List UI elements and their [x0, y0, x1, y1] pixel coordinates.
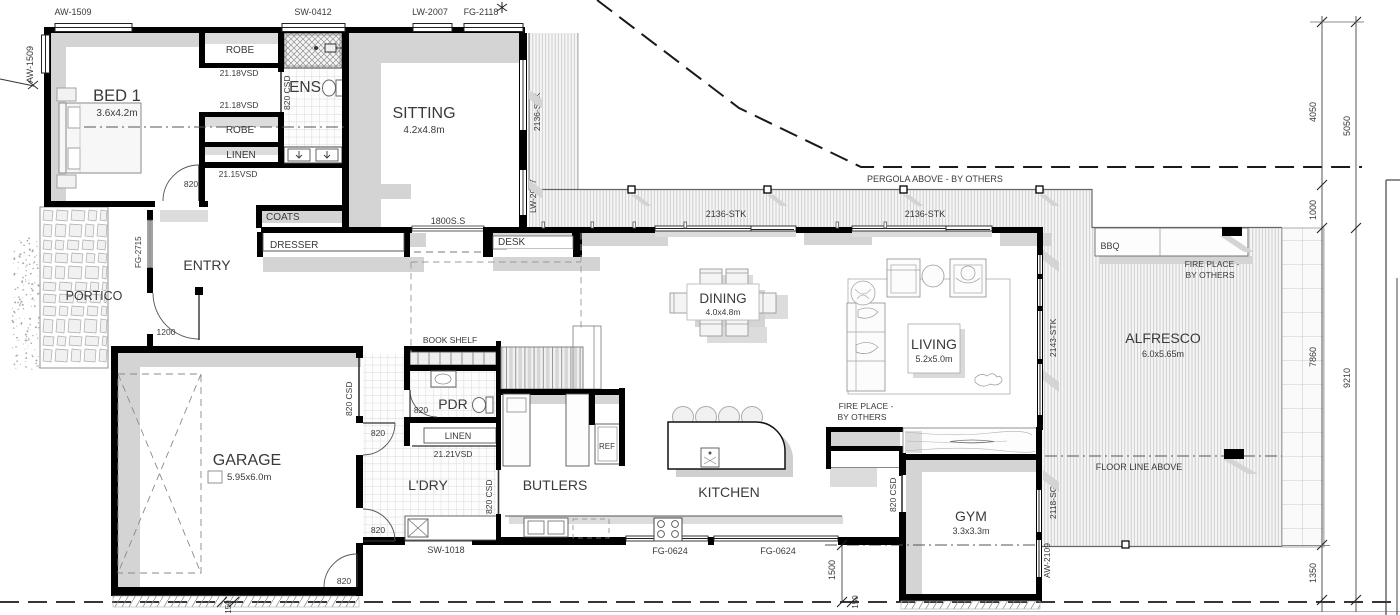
- svg-text:2136-STK: 2136-STK: [905, 209, 946, 219]
- svg-text:DRESSER: DRESSER: [270, 240, 318, 251]
- svg-text:BY OTHERS: BY OTHERS: [838, 412, 887, 422]
- svg-text:LW-2007: LW-2007: [412, 7, 448, 17]
- svg-text:3.3x3.3m: 3.3x3.3m: [952, 526, 989, 536]
- svg-text:4050: 4050: [1308, 102, 1318, 122]
- svg-text:21.15VSD: 21.15VSD: [219, 169, 258, 179]
- svg-text:BUTLERS: BUTLERS: [523, 477, 588, 493]
- svg-text:LINEN: LINEN: [226, 150, 255, 161]
- svg-text:FIRE PLACE -: FIRE PLACE -: [839, 401, 894, 411]
- svg-text:4.0x4.8m: 4.0x4.8m: [706, 307, 741, 317]
- svg-text:5.2x5.0m: 5.2x5.0m: [915, 354, 952, 364]
- svg-text:820 CSD: 820 CSD: [344, 382, 354, 417]
- svg-text:LIVING: LIVING: [911, 336, 957, 352]
- svg-text:2136-STK: 2136-STK: [706, 209, 747, 219]
- svg-text:ENS: ENS: [289, 79, 321, 96]
- svg-text:BOOK SHELF: BOOK SHELF: [423, 335, 477, 345]
- svg-text:820: 820: [371, 525, 385, 535]
- svg-text:21.21VSD: 21.21VSD: [434, 449, 473, 459]
- svg-text:21.18VSD: 21.18VSD: [220, 68, 259, 78]
- svg-text:5050: 5050: [1342, 116, 1352, 136]
- svg-text:21.18VSD: 21.18VSD: [220, 100, 259, 110]
- svg-text:820: 820: [184, 179, 198, 189]
- svg-text:6.0x5.65m: 6.0x5.65m: [1142, 349, 1184, 359]
- svg-text:820 CSD: 820 CSD: [282, 76, 292, 111]
- svg-text:COATS: COATS: [266, 212, 300, 223]
- svg-text:BED 1: BED 1: [93, 87, 141, 105]
- svg-text:1000: 1000: [1308, 200, 1318, 220]
- svg-text:FG-2715: FG-2715: [134, 236, 143, 268]
- svg-text:AW-2109: AW-2109: [1042, 543, 1052, 578]
- svg-text:1200: 1200: [157, 327, 176, 337]
- svg-text:1350: 1350: [1308, 563, 1318, 583]
- svg-text:REF: REF: [599, 442, 615, 451]
- svg-text:150: 150: [224, 600, 233, 614]
- svg-text:5.95x6.0m: 5.95x6.0m: [227, 472, 271, 483]
- svg-text:FG-0624: FG-0624: [652, 546, 688, 556]
- svg-text:1800S.S: 1800S.S: [431, 216, 466, 226]
- svg-text:ENTRY: ENTRY: [183, 257, 231, 273]
- svg-text:SW-1018: SW-1018: [427, 545, 464, 555]
- svg-text:PORTICO: PORTICO: [66, 289, 123, 303]
- svg-text:BBQ: BBQ: [1100, 241, 1119, 251]
- svg-text:DESK: DESK: [498, 237, 526, 248]
- svg-text:820: 820: [414, 405, 428, 415]
- svg-text:820 CSD: 820 CSD: [484, 480, 494, 515]
- svg-text:AW-1509: AW-1509: [25, 46, 35, 83]
- svg-text:PERGOLA ABOVE - BY OTHERS: PERGOLA ABOVE - BY OTHERS: [867, 174, 1003, 184]
- svg-text:KITCHEN: KITCHEN: [698, 484, 759, 500]
- svg-text:GYM: GYM: [955, 508, 987, 524]
- svg-text:FG-0624: FG-0624: [760, 546, 796, 556]
- svg-text:FG-2118: FG-2118: [464, 7, 499, 17]
- svg-text:AW-1509: AW-1509: [54, 7, 91, 17]
- svg-text:820: 820: [371, 428, 385, 438]
- svg-text:ALFRESCO: ALFRESCO: [1125, 330, 1201, 346]
- svg-text:SW-0412: SW-0412: [294, 7, 331, 17]
- svg-text:GARAGE: GARAGE: [213, 452, 281, 469]
- svg-text:BY OTHERS: BY OTHERS: [1186, 270, 1235, 280]
- svg-text:LINEN: LINEN: [445, 431, 472, 441]
- svg-text:SITTING: SITTING: [392, 105, 455, 122]
- svg-text:DINING: DINING: [699, 291, 746, 306]
- svg-text:FIRE PLACE -: FIRE PLACE -: [1185, 259, 1240, 269]
- svg-text:4.2x4.8m: 4.2x4.8m: [403, 125, 444, 136]
- svg-text:FLOOR LINE ABOVE: FLOOR LINE ABOVE: [1096, 462, 1183, 472]
- svg-text:ROBE: ROBE: [226, 45, 255, 56]
- svg-text:3.6x4.2m: 3.6x4.2m: [96, 108, 137, 119]
- svg-text:820: 820: [337, 576, 351, 586]
- svg-text:820 CSD: 820 CSD: [888, 478, 898, 513]
- svg-text:1500: 1500: [827, 560, 837, 580]
- svg-text:9210: 9210: [1342, 368, 1352, 388]
- svg-text:2143-STK: 2143-STK: [1048, 318, 1058, 357]
- svg-text:PDR: PDR: [438, 396, 468, 412]
- svg-text:7860: 7860: [1308, 347, 1318, 367]
- svg-text:L'DRY: L'DRY: [408, 477, 448, 493]
